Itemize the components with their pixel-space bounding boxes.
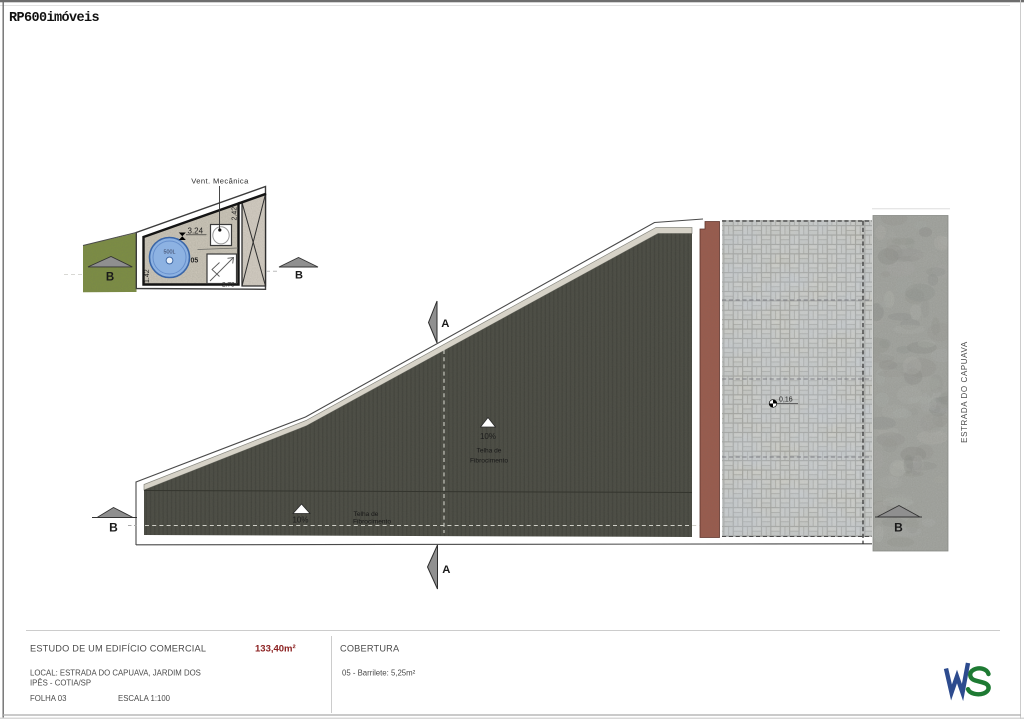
- svg-text:FOLHA 03: FOLHA 03: [30, 694, 66, 703]
- svg-text:ESCALA 1:100: ESCALA 1:100: [118, 694, 171, 703]
- svg-text:A: A: [441, 318, 449, 330]
- svg-text:500L: 500L: [164, 250, 176, 256]
- svg-text:B: B: [106, 272, 114, 284]
- svg-text:B: B: [295, 270, 303, 282]
- svg-text:B: B: [894, 521, 903, 535]
- svg-text:Fibrocimento: Fibrocimento: [470, 458, 508, 465]
- svg-text:RP600imóveis: RP600imóveis: [9, 11, 100, 26]
- svg-text:Telha de: Telha de: [477, 448, 502, 455]
- svg-text:3.24: 3.24: [188, 227, 204, 236]
- svg-text:ESTUDO DE UM EDIFÍCIO COMERCIA: ESTUDO DE UM EDIFÍCIO COMERCIAL: [30, 644, 206, 654]
- svg-text:Vent. Mecânica: Vent. Mecânica: [191, 177, 249, 186]
- svg-text:IPÊS - COTIA/SP: IPÊS - COTIA/SP: [30, 679, 91, 688]
- svg-text:Telha de: Telha de: [354, 511, 379, 518]
- svg-text:COBERTURA: COBERTURA: [340, 644, 400, 654]
- svg-text:A: A: [442, 564, 450, 576]
- svg-text:1.42: 1.42: [144, 269, 151, 283]
- svg-text:05 - Barrilete: 5,25m²: 05 - Barrilete: 5,25m²: [342, 669, 416, 678]
- svg-text:10%: 10%: [480, 432, 496, 441]
- svg-text:2.42: 2.42: [232, 207, 239, 221]
- svg-text:10%: 10%: [292, 516, 308, 525]
- svg-text:0,16: 0,16: [779, 397, 793, 404]
- svg-text:B: B: [109, 521, 118, 535]
- svg-text:LOCAL: ESTRADA DO CAPUAVA, JAR: LOCAL: ESTRADA DO CAPUAVA, JARDIM DOS: [30, 669, 201, 678]
- svg-text:ESTRADA DO CAPUAVA: ESTRADA DO CAPUAVA: [960, 341, 969, 443]
- svg-text:2.73: 2.73: [222, 282, 235, 289]
- svg-text:05: 05: [191, 258, 199, 265]
- svg-text:133,40m²: 133,40m²: [255, 644, 296, 655]
- svg-text:Fibrocimento: Fibrocimento: [353, 519, 391, 526]
